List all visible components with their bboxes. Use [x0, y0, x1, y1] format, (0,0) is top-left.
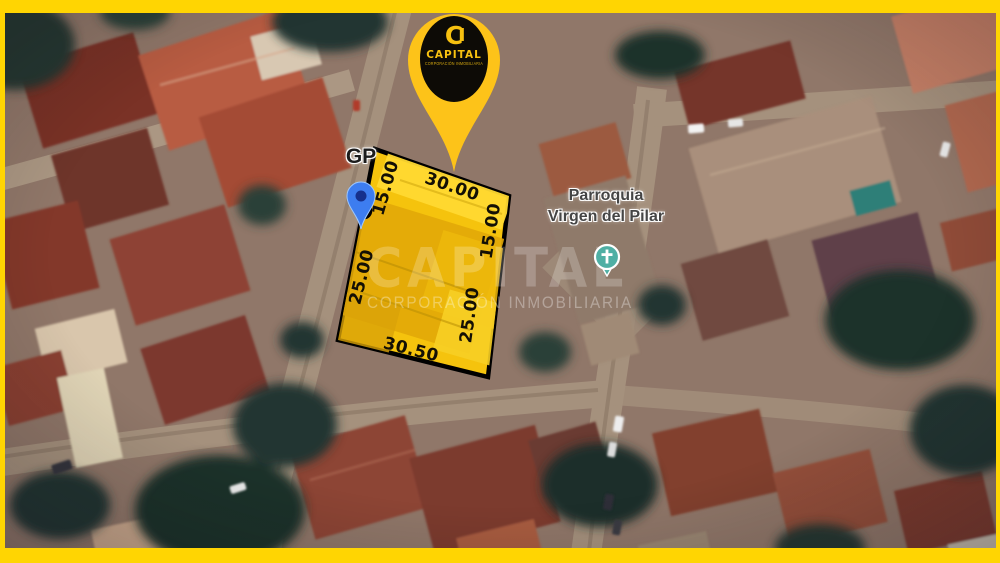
logo-bar — [460, 28, 464, 41]
gp-map-label: GP — [346, 145, 376, 169]
frame-bar-top — [0, 0, 1000, 13]
blue-pin-icon — [345, 181, 377, 231]
church-poi-icon[interactable] — [593, 243, 621, 277]
capital-logo: C CAPITAL CORPORACIÓN INMOBILIARIA — [406, 12, 502, 112]
frame-bar-right — [996, 0, 1000, 563]
capital-logo-tagline: CORPORACIÓN INMOBILIARIA — [425, 61, 483, 66]
church-cross-icon — [593, 243, 621, 277]
blue-map-pin[interactable] — [345, 181, 377, 231]
capital-logo-monogram: C — [445, 24, 463, 48]
church-label-line2: Virgen del Pilar — [548, 206, 664, 227]
frame-bar-left — [0, 0, 5, 563]
capital-map-pin[interactable]: C CAPITAL CORPORACIÓN INMOBILIARIA — [406, 12, 502, 177]
church-label-line1: Parroquia — [548, 185, 664, 206]
capital-logo-wordmark: CAPITAL — [426, 49, 482, 61]
frame-bar-bottom — [0, 548, 1000, 563]
real-estate-map-ad: CAPITAL CORPORACIÓN INMOBILIARIA 30.00 1… — [0, 0, 1000, 563]
church-map-label: Parroquia Virgen del Pilar — [548, 185, 664, 227]
